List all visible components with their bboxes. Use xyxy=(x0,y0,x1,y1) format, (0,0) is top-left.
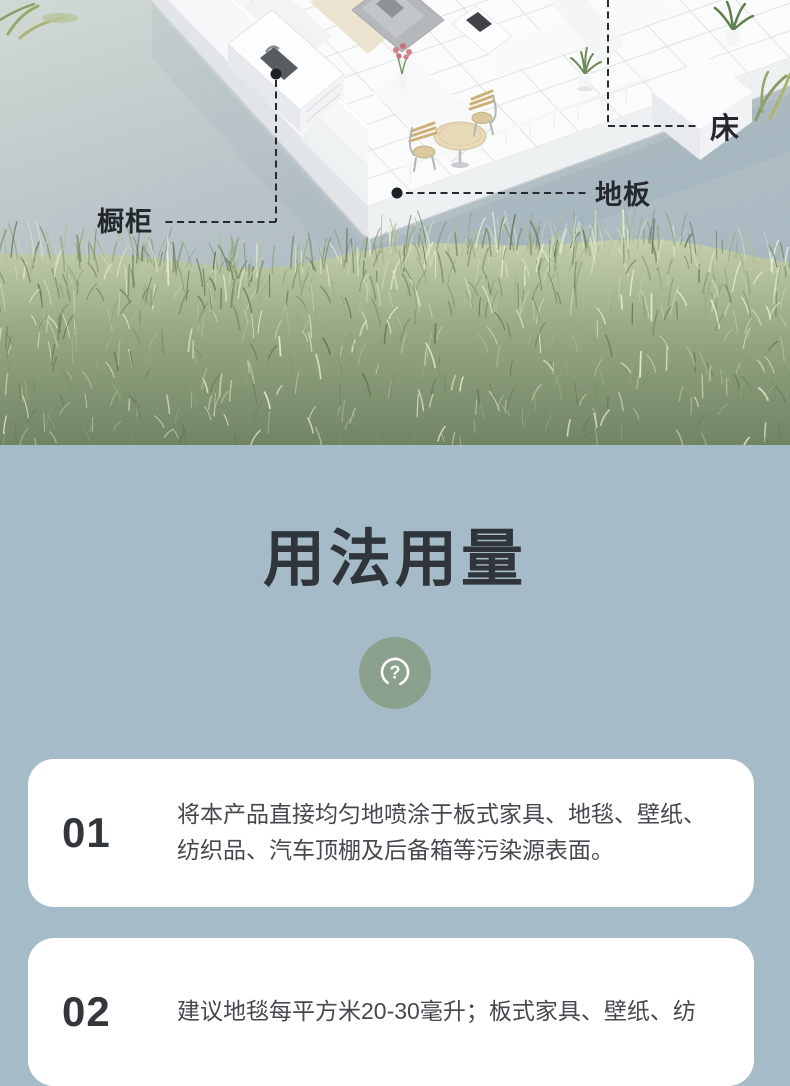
callout-label-cabinet: 橱柜 xyxy=(97,209,153,236)
svg-text:?: ? xyxy=(390,663,401,683)
step-text: 将本产品直接均匀地喷涂于板式家具、地毯、壁纸、纺织品、汽车顶棚及后备箱等污染源表… xyxy=(177,797,712,869)
usage-section: 用法用量 ? 01 将本产品直接均匀地喷涂于板式家具、地毯、壁纸、纺织品、汽车顶… xyxy=(0,445,790,1000)
step-number: 01 xyxy=(62,809,177,857)
callout-cabinet-dot xyxy=(271,69,282,80)
step-number: 02 xyxy=(62,988,177,1036)
callout-label-floor: 地板 xyxy=(595,182,651,209)
usage-step-card-2: 02 建议地毯每平方米20-30毫升；板式家具、壁纸、纺 xyxy=(28,938,754,1086)
usage-step-card-1: 01 将本产品直接均匀地喷涂于板式家具、地毯、壁纸、纺织品、汽车顶棚及后备箱等污… xyxy=(28,759,754,907)
question-icon: ? xyxy=(376,654,414,692)
callout-label-bed: 床 xyxy=(710,115,740,144)
step-text: 建议地毯每平方米20-30毫升；板式家具、壁纸、纺 xyxy=(177,994,712,1030)
section-title: 用法用量 xyxy=(0,445,790,591)
question-badge: ? xyxy=(359,637,431,709)
hero-scene: 床 地板 橱柜 xyxy=(0,0,790,445)
usage-steps: 01 将本产品直接均匀地喷涂于板式家具、地毯、壁纸、纺织品、汽车顶棚及后备箱等污… xyxy=(0,759,790,1086)
callout-floor-dot xyxy=(392,188,403,199)
